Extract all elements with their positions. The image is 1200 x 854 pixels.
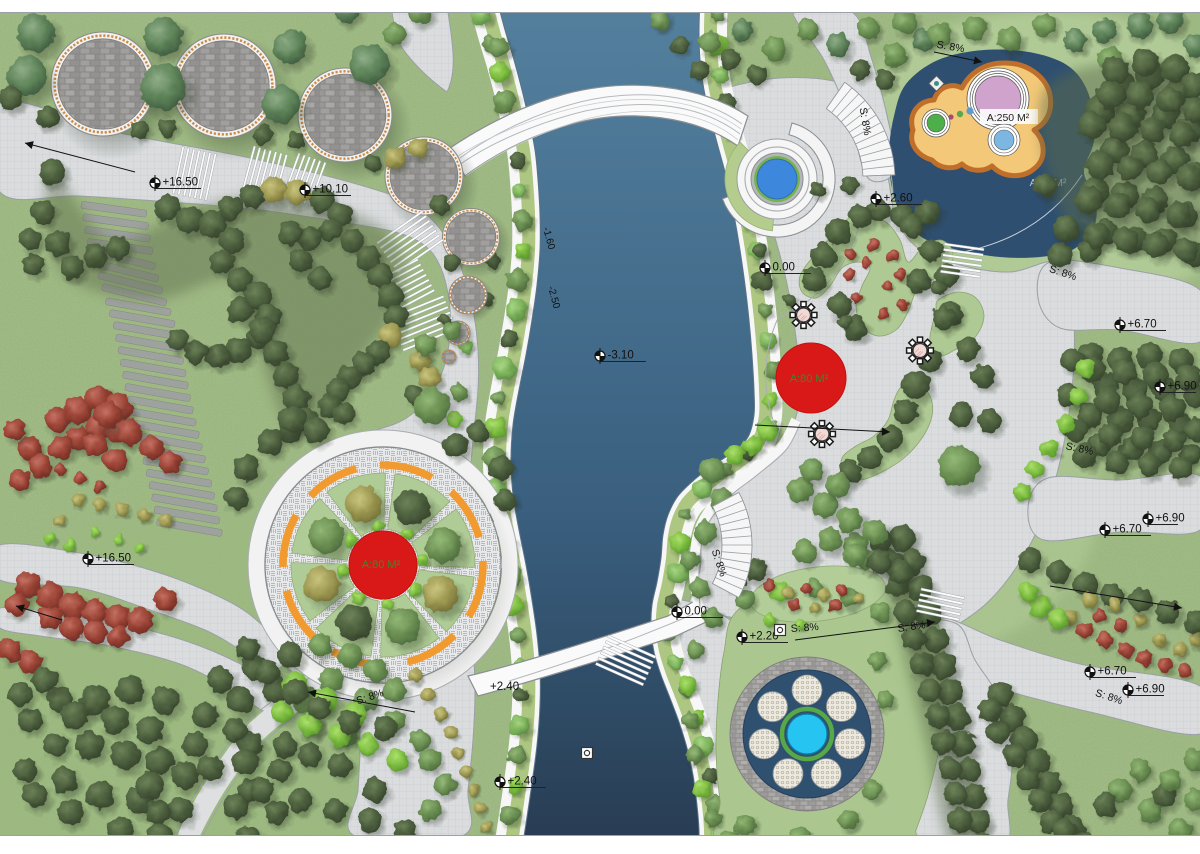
svg-text:+2.60: +2.60 bbox=[884, 193, 913, 205]
svg-text:A:80 M²: A:80 M² bbox=[790, 373, 829, 385]
svg-text:+6.70: +6.70 bbox=[1098, 666, 1127, 678]
svg-text:+6.90: +6.90 bbox=[1156, 513, 1185, 525]
svg-text:+6.70: +6.70 bbox=[1128, 319, 1157, 331]
svg-text:+2.40: +2.40 bbox=[490, 681, 519, 693]
svg-text:A:80 M²: A:80 M² bbox=[362, 559, 401, 571]
svg-text:+6.90: +6.90 bbox=[1136, 684, 1165, 696]
svg-text:0.00: 0.00 bbox=[773, 262, 795, 274]
svg-text:-3.10: -3.10 bbox=[608, 350, 634, 362]
svg-text:0.00: 0.00 bbox=[685, 606, 707, 618]
svg-text:+2.40: +2.40 bbox=[508, 776, 537, 788]
svg-text:+6.90: +6.90 bbox=[1168, 381, 1197, 393]
svg-text:S: 8%: S: 8% bbox=[790, 621, 819, 635]
svg-text:+16.50: +16.50 bbox=[163, 177, 199, 189]
svg-text:+10.10: +10.10 bbox=[313, 184, 349, 196]
svg-text:+6.70: +6.70 bbox=[1113, 524, 1142, 536]
svg-text:A:250 M²: A:250 M² bbox=[987, 112, 1030, 124]
svg-text:+16.50: +16.50 bbox=[96, 553, 132, 565]
